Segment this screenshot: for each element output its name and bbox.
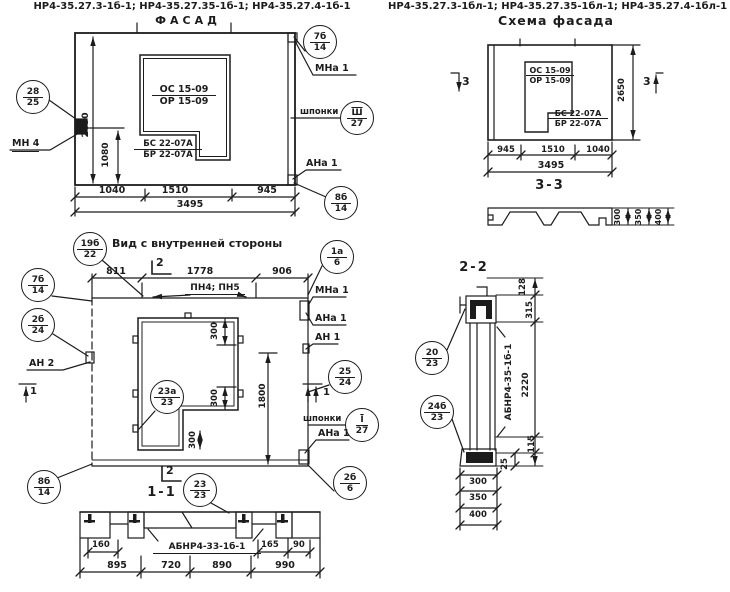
inner-dim-w2: 1778 <box>180 267 220 278</box>
window-series-mark: ОС 15-09 <box>152 84 216 96</box>
facade-window-mark: ОС 15-09 ОР 15-09 <box>152 84 216 107</box>
sec22-thickness-350: 350 <box>463 494 493 504</box>
callout-20-23: 2023 <box>415 341 449 375</box>
schema-dim-w2: 1510 <box>532 146 574 156</box>
block-frame-mark: БР 22-07А <box>134 150 202 160</box>
inner-dim-w1: 811 <box>98 267 134 278</box>
schema-dim-total: 3495 <box>529 161 573 172</box>
section-2-2-title: 2-2 <box>450 261 498 276</box>
sec33-thickness-400: 400 <box>652 201 666 233</box>
section-mark-2-top: 2 <box>156 257 164 270</box>
section-mark-3-right: 3 <box>643 76 651 89</box>
inner-dim-300-bottom: 300 <box>187 424 201 456</box>
anchor-label-ana1-facade: АНа 1 <box>306 159 338 170</box>
sec22-dim-25: 25 <box>499 448 513 480</box>
callout-keys-III-27: Ш27 <box>340 101 374 135</box>
sec11-dim-990: 990 <box>263 561 307 572</box>
callout-19b-22: 19б22 <box>73 232 107 266</box>
inner-dim-1800: 1800 <box>256 380 270 412</box>
anchor-label-an2: АН 2 <box>29 359 54 370</box>
callout-23-23: 2323 <box>183 473 217 507</box>
inner-view-title: Вид с внутренней стороны <box>112 238 282 251</box>
facade-dim-height: 2650 <box>79 109 93 141</box>
callout-8b-14-facade: 8б14 <box>324 186 358 220</box>
facade-dim-w2: 1510 <box>155 186 195 197</box>
anchor-label-ana1-bottom: АНа 1 <box>318 429 350 440</box>
callout-7b-14-facade: 7б14 <box>303 25 337 59</box>
sec11-dim-90: 90 <box>293 541 305 551</box>
window-frame-mark: ОР 15-09 <box>152 96 216 107</box>
callout-2b-24: 2б24 <box>21 308 55 342</box>
reinforcement-label-sec22: АБНР4-35-1б-1 <box>502 327 516 437</box>
section-3-3-title: 3-3 <box>524 179 576 194</box>
sec22-dim-115: 115 <box>526 428 540 460</box>
sec22-dim-315: 315 <box>524 294 538 326</box>
callout-25-24: 2524 <box>328 360 362 394</box>
inner-dim-300-mid: 300 <box>209 382 223 414</box>
sec11-dim-895: 895 <box>97 561 137 572</box>
facade-title: ФАСАД <box>140 15 236 28</box>
schema-window-mark: ОС 15-09 ОР 15-09 <box>526 66 574 85</box>
anchor-label-mna1-facade: МНа 1 <box>315 64 349 75</box>
section-mark-1-right: 1 <box>323 387 330 399</box>
sec11-dim-160: 160 <box>92 541 110 551</box>
anchor-label-an1: АН 1 <box>315 333 340 344</box>
reinforcement-label-sec11: АБНР4-33-1б-1 <box>153 542 261 554</box>
anchor-label-ana1-top: АНа 1 <box>315 314 347 325</box>
schema-dim-height: 2650 <box>616 74 630 106</box>
anchor-label-mna1-inner: МНа 1 <box>315 286 349 297</box>
section-1-1-title: 1-1 <box>142 486 182 501</box>
schema-dim-w1: 945 <box>489 146 523 156</box>
anchor-label-mn4: МН 4 <box>12 139 39 152</box>
schema-block-mark: БС 22-07А БР 22-07А <box>548 109 608 128</box>
callout-2b-6: 2б6 <box>333 466 367 500</box>
sec22-dim-2220: 2220 <box>519 369 533 401</box>
inner-dim-300-top: 300 <box>209 315 223 347</box>
keys-label-facade: шпонки <box>300 108 338 118</box>
block-series-mark: БС 22-07А <box>134 139 202 150</box>
rail-label-pn4-pn5: ПН4; ПН5 <box>185 283 245 295</box>
sec33-thickness-300: 300 <box>611 201 625 233</box>
sec11-dim-890: 890 <box>201 561 243 572</box>
header-codes-right: НР4-35.27.3-1бл-1; НР4-35.27.35-1бл-1; Н… <box>388 1 724 13</box>
section-mark-2-bottom: 2 <box>166 465 174 478</box>
facade-block-mark: БС 22-07А БР 22-07А <box>134 139 202 160</box>
callout-8b-14-inner: 8б14 <box>27 470 61 504</box>
callout-keys-I-27: I27 <box>345 408 379 442</box>
drawing-sheet: НР4-35.27.3-1б-1; НР4-35.27.35-1б-1; НР4… <box>0 0 730 592</box>
section-mark-3-left: 3 <box>462 76 470 89</box>
sec22-thickness-300: 300 <box>463 478 493 488</box>
sec22-thickness-400: 400 <box>463 511 493 521</box>
callout-28-25: 2825 <box>16 80 50 114</box>
sec11-dim-165: 165 <box>261 541 279 551</box>
schema-title: Схема фасада <box>388 14 724 28</box>
facade-dim-w1: 1040 <box>92 186 132 197</box>
facade-dim-total: 3495 <box>167 200 213 211</box>
inner-dim-w3: 906 <box>263 267 301 278</box>
header-codes-left: НР4-35.27.3-1б-1; НР4-35.27.35-1б-1; НР4… <box>22 1 362 13</box>
section-mark-1-left: 1 <box>30 386 37 398</box>
callout-24b-23: 24б23 <box>420 395 454 429</box>
facade-dim-sill: 1080 <box>99 139 113 171</box>
schema-dim-w3: 1040 <box>577 146 619 156</box>
callout-7b-14-inner: 7б14 <box>21 268 55 302</box>
keys-label-inner: шпонки <box>303 415 341 425</box>
facade-dim-w3: 945 <box>247 186 287 197</box>
callout-23a-23: 23а23 <box>150 380 184 414</box>
callout-1a-6: 1а6 <box>320 240 354 274</box>
sec11-dim-720: 720 <box>151 561 191 572</box>
sec33-thickness-350: 350 <box>632 201 646 233</box>
